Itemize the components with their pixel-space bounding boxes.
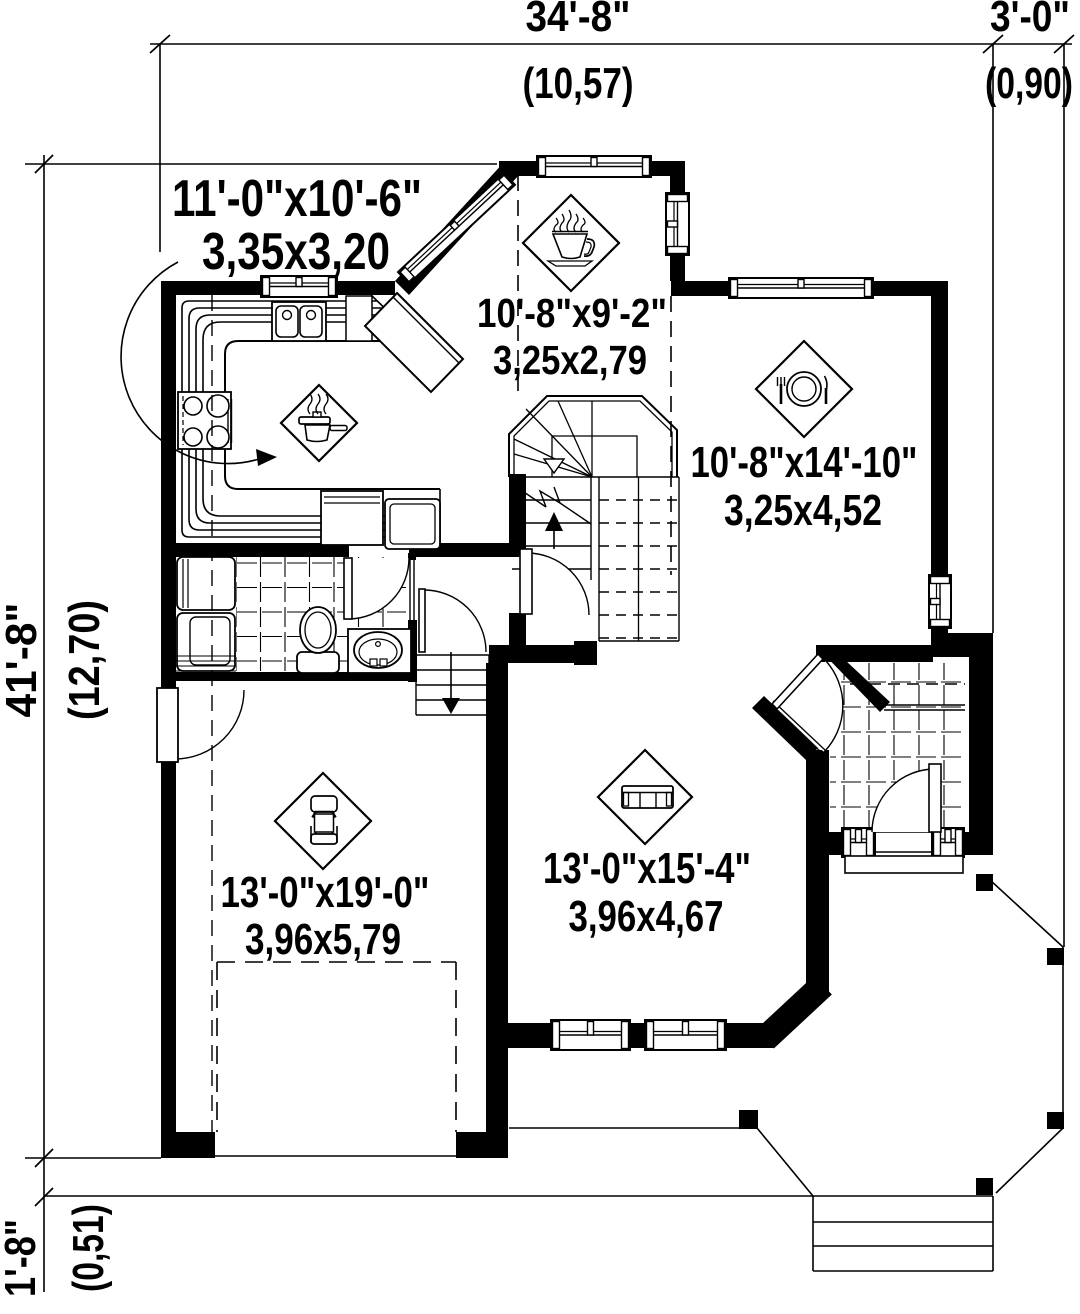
svg-text:13'-0"x15'-4": 13'-0"x15'-4" (543, 844, 751, 893)
svg-text:3,25x2,79: 3,25x2,79 (493, 337, 647, 383)
svg-text:10'-8"x14'-10": 10'-8"x14'-10" (691, 438, 918, 487)
svg-text:3,35x3,20: 3,35x3,20 (202, 223, 390, 281)
svg-text:3,25x4,52: 3,25x4,52 (724, 486, 882, 535)
svg-text:1'-8": 1'-8" (0, 1219, 45, 1297)
svg-text:41'-8": 41'-8" (0, 603, 46, 718)
svg-text:(0,90): (0,90) (985, 59, 1073, 108)
svg-text:(12,70): (12,70) (60, 600, 109, 720)
svg-text:11'-0"x10'-6": 11'-0"x10'-6" (172, 170, 422, 228)
svg-text:(10,57): (10,57) (523, 59, 634, 108)
svg-text:3,96x5,79: 3,96x5,79 (245, 915, 401, 964)
svg-text:3'-0": 3'-0" (990, 0, 1070, 41)
svg-text:34'-8": 34'-8" (526, 0, 631, 41)
svg-text:(0,51): (0,51) (64, 1204, 113, 1292)
svg-text:13'-0"x19'-0": 13'-0"x19'-0" (221, 868, 430, 917)
svg-text:10'-8"x9'-2": 10'-8"x9'-2" (477, 290, 667, 336)
svg-text:3,96x4,67: 3,96x4,67 (569, 892, 724, 941)
